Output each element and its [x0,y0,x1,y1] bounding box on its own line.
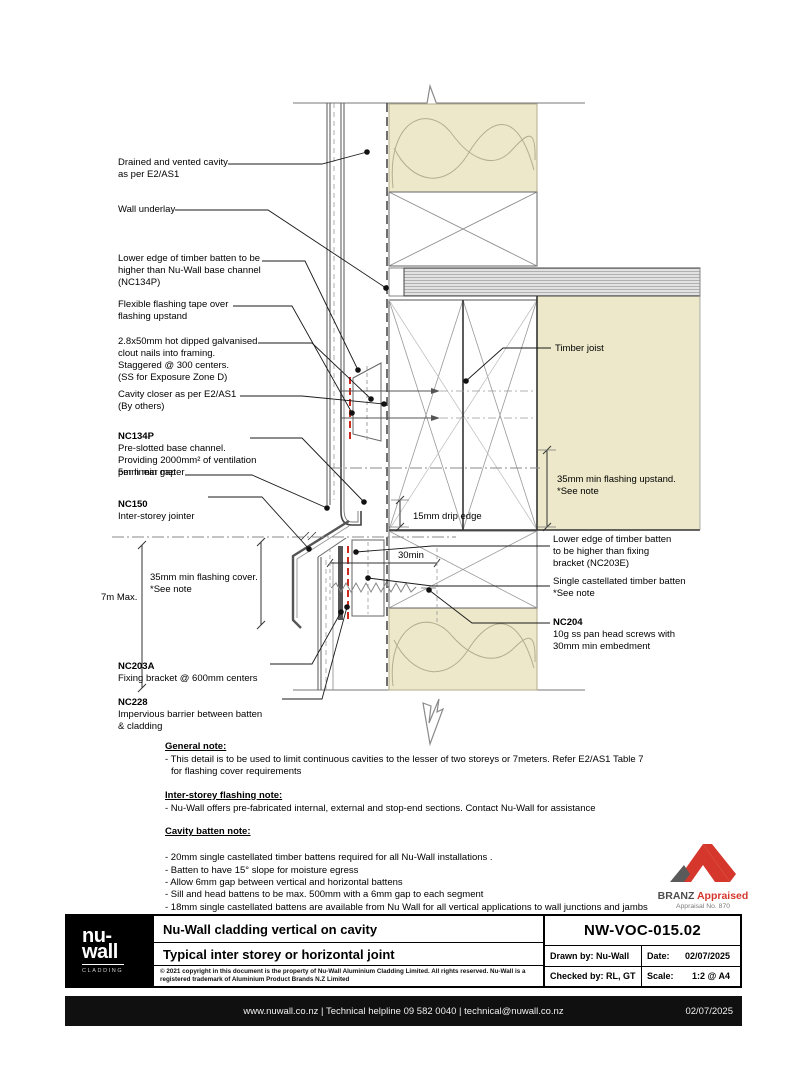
branz-mark-icon [646,840,760,886]
branz-name-dark: BRANZ [658,890,695,902]
callout-cavity-closer: Cavity closer as per E2/AS1 (By others) [118,389,236,413]
branz-name-red: Appraised [697,890,748,902]
nuwall-logo-line2: wall [82,944,153,960]
callout-flashing-tape: Flexible flashing tape over flashing ups… [118,299,228,323]
callout-nc150: NC150Inter-storey jointer [118,487,195,523]
callout-flashing-upstand: 35mm min flashing upstand. *See note [557,474,676,498]
callout-wall-underlay: Wall underlay [118,204,175,216]
callout-30min: 30min [398,550,424,562]
cavity-bullet-5: - 18mm single castellated battens are av… [165,902,705,914]
drawn-by: Drawn by: Nu-Wall [545,946,642,966]
footer-contact: www.nuwall.co.nz | Technical helpline 09… [243,1006,563,1017]
branz-name: BRANZ Appraised [646,891,760,902]
drawn-date-row: Drawn by: Nu-Wall Date: 02/07/2025 [545,946,740,967]
callout-single-batten: Single castellated timber batten *See no… [553,576,686,600]
callout-flashing-cover: 35mm min flashing cover. *See note [150,572,258,596]
date-value: 02/07/2025 [685,951,730,961]
timber-joist-bay [389,300,537,530]
floor-slab [389,268,700,296]
page: { "callouts": { "cavity": "Drained and v… [0,0,800,1080]
cavity-bullet-4: - Sill and head battens to be max. 500mm… [165,889,705,901]
insulation-top [389,104,537,192]
callout-nc204: NC20410g ss pan head screws with 30mm mi… [553,605,675,653]
callout-drained-cavity: Drained and vented cavity as per E2/AS1 [118,157,228,181]
footer-date: 02/07/2025 [685,996,733,1026]
scale-label: Scale: [647,971,674,981]
callout-timber-joist: Timber joist [555,343,604,355]
general-note-heading: General note: [165,741,705,753]
nc204-text: 10g ss pan head screws with 30mm min emb… [553,629,675,652]
date-cell: Date: 02/07/2025 [642,946,740,966]
title-block-right: NW-VOC-015.02 Drawn by: Nu-Wall Date: 02… [543,916,740,986]
notes-section: General note: - This detail is to be use… [165,741,705,927]
footer-bar: www.nuwall.co.nz | Technical helpline 09… [65,996,742,1026]
scale-value: 1:2 @ A4 [692,971,730,981]
nc134p-code: NC134P [118,431,256,443]
checked-scale-row: Checked by: RL, GT Scale: 1:2 @ A4 [545,967,740,987]
callout-7m-max: 7m Max. [101,592,137,604]
scale-cell: Scale: 1:2 @ A4 [642,967,740,987]
callout-batten-edge-right: Lower edge of timber batten to be higher… [553,534,671,570]
callout-nc203a: NC203AFixing bracket @ 600mm centers [118,649,258,685]
nuwall-logo-sub: CLADDING [82,968,153,974]
cavity-bullet-1: - 20mm single castellated timber battens… [165,852,705,864]
nc150-text: Inter-storey jointer [118,511,195,522]
callout-drip-edge: 15mm drip edge [413,511,482,523]
lower-framing-bay [389,531,537,608]
interstorey-note-line1: - Nu-Wall offers pre-fabricated internal… [165,803,705,815]
copyright-text: © 2021 copyright in this document is the… [154,966,543,986]
callout-clout-nails: 2.8x50mm hot dipped galvanised clout nai… [118,336,257,384]
general-note-line2: for flashing cover requirements [165,766,705,778]
drawing-number: NW-VOC-015.02 [545,916,740,946]
callout-5mm-gap: 5mm min gap [118,467,176,479]
fixing-bracket [338,546,343,620]
nc150-code: NC150 [118,499,195,511]
nc203a-text: Fixing bracket @ 600mm centers [118,673,258,684]
insulation-bottom [389,608,537,690]
nc204-code: NC204 [553,617,675,629]
nc228-code: NC228 [118,697,262,709]
title-block-middle: Nu-Wall cladding vertical on cavity Typi… [153,916,543,986]
nuwall-logo-rule [82,964,124,965]
nc203a-code: NC203A [118,661,258,673]
drawing-title: Nu-Wall cladding vertical on cavity [154,916,543,943]
callout-batten-edge-left: Lower edge of timber batten to be higher… [118,253,261,289]
break-arrow-bottom [423,699,443,744]
drawing-subtitle: Typical inter storey or horizontal joint [154,943,543,966]
branz-appraisal-number: Appraisal No. 870 [646,902,760,911]
cavity-batten-note-heading: Cavity batten note: [165,826,705,838]
timber-plate [389,192,537,266]
nc228-text: Impervious barrier between batten & clad… [118,709,262,732]
title-block: nu- wall CLADDING Nu-Wall cladding verti… [65,914,742,988]
branz-appraised-logo: BRANZ Appraised Appraisal No. 870 [646,840,760,911]
checked-by: Checked by: RL, GT [545,967,642,987]
interstorey-note-heading: Inter-storey flashing note: [165,790,705,802]
general-note-line1: - This detail is to be used to limit con… [165,754,705,766]
cavity-bullet-3: - Allow 6mm gap between vertical and hor… [165,877,705,889]
callout-nc228: NC228Impervious barrier between batten &… [118,685,262,733]
nuwall-logo: nu- wall CLADDING [67,916,153,986]
cavity-bullet-2: - Batten to have 15° slope for moisture … [165,865,705,877]
date-label: Date: [647,951,670,961]
